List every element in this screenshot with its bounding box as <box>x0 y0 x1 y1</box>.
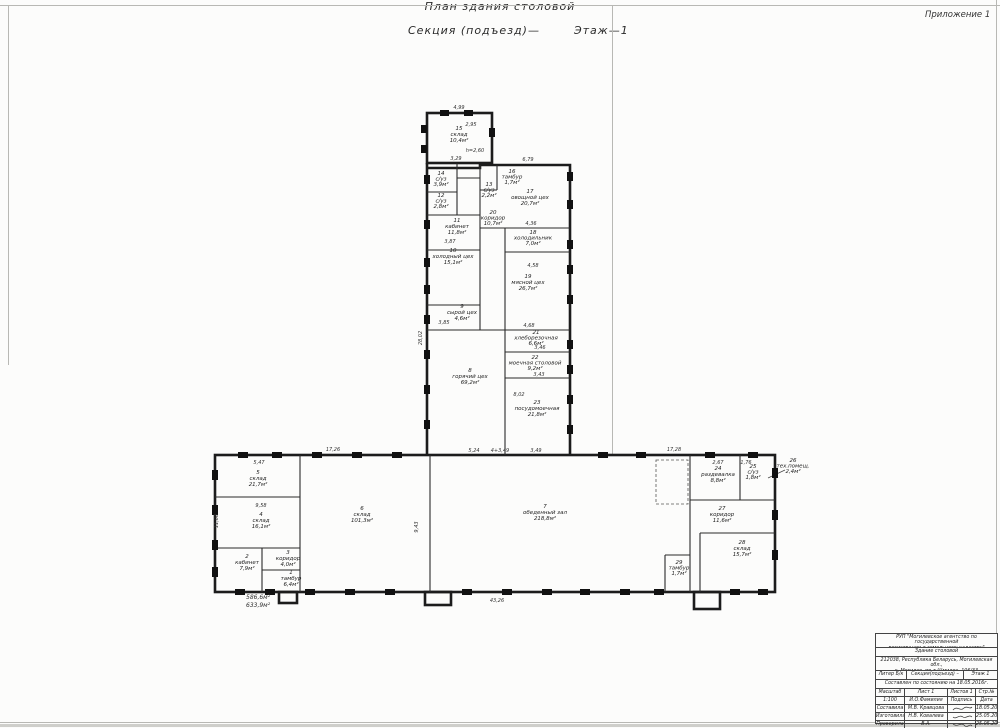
room-area: 69,2м² <box>461 379 480 386</box>
dim-label: 8,02 <box>513 392 524 398</box>
room-area: 15,7м² <box>733 551 752 558</box>
drafter-signature <box>948 713 976 720</box>
dim-label: 3,49 <box>530 448 541 454</box>
dim-label: 5,47 <box>253 460 265 466</box>
room-area: 2,4м² <box>785 468 801 475</box>
scale-value: 1:100 <box>876 697 905 704</box>
room-area: 218,8м² <box>534 515 557 522</box>
dim-label: 2,95 <box>465 122 476 128</box>
room-area: 2,8м² <box>433 203 449 210</box>
room-area: 7,9м² <box>239 565 255 572</box>
room-area: 8,8м² <box>710 477 726 484</box>
room-label-17: 17овощной цех20,7м² <box>511 189 550 207</box>
col-sheets: Листов 1 <box>948 689 976 696</box>
room-labels: 1тамбур6,4м² 2кабинет7,9м² 3коридор4,0м²… <box>235 126 810 588</box>
room-area: 15,1м² <box>444 259 463 266</box>
name-header: И.О.Фамилия <box>905 697 948 704</box>
area-total-1: 586,6м² <box>246 594 271 601</box>
room-label-24: 24раздевалка8,8м² <box>700 466 735 484</box>
room-label-15: 15склад10,4м² <box>450 126 469 144</box>
room-label-27: 27коридор11,6м² <box>710 506 735 524</box>
room-area: 16,1м² <box>252 523 271 530</box>
liter-cell: Литер Б/к <box>876 671 907 679</box>
dim-label: 43,26 <box>490 598 504 604</box>
org-name-line1: РУП "Могилевское агентство по государств… <box>876 635 997 646</box>
room-area: 1,8м² <box>745 474 761 481</box>
dim-label: 4,99 <box>453 105 464 111</box>
compiled-date: Составлен по состоянию на 18.05.2016г. <box>876 680 997 689</box>
room-label-16: 16тамбур1,7м² <box>502 169 523 186</box>
dim-label: 3,43 <box>533 372 544 378</box>
interior-walls <box>215 163 775 592</box>
address-line1: 212038, Республика Беларусь, Могилевская… <box>876 658 997 669</box>
room-label-11: 11кабинет11,8м² <box>445 218 470 236</box>
room-area: 21,8м² <box>528 411 547 418</box>
role-drafter: Изготовила <box>876 713 905 720</box>
dim-label: 1,76 <box>740 460 751 466</box>
title-block: РУП "Могилевское агентство по государств… <box>875 633 998 724</box>
room-label-3: 3коридор4,0м² <box>276 550 301 568</box>
compiler-date: 18.05.2016 <box>976 705 997 712</box>
section-cell: Секция(подъезд) – <box>907 671 964 679</box>
room-area: 2,2м² <box>481 192 497 199</box>
outer-walls <box>215 113 775 609</box>
room-area: 4,0м² <box>280 561 296 568</box>
height-note: h=2,60 <box>466 148 485 154</box>
dim-label: 9,43 <box>414 521 420 532</box>
col-scale-header: Масштаб <box>876 689 905 696</box>
date-header: Дата <box>976 697 997 704</box>
room-label-1: 1тамбур6,4м² <box>281 570 302 588</box>
dim-label: 3,29 <box>450 156 461 162</box>
room-label-22: 22моечная столовой9,2м² <box>509 355 562 372</box>
dim-label: 17,28 <box>667 447 681 453</box>
dim-label: 6,79 <box>522 157 533 163</box>
dim-label: 3,87 <box>444 239 456 245</box>
room-label-19: 19мясной цех26,7м² <box>511 274 545 292</box>
room-area: 101,3м² <box>351 517 374 524</box>
room-area: 10,7м² <box>484 220 503 227</box>
room-label-5: 5склад21,7м² <box>249 470 268 488</box>
role-compiler: Составила <box>876 705 905 712</box>
dim-label: 3,46 <box>534 345 545 351</box>
signature-squiggle <box>951 713 973 720</box>
dim-label: 5,24 <box>468 448 479 454</box>
dim-label: 9,58 <box>255 503 266 509</box>
room-label-18: 18холодильник7,0м² <box>513 230 553 247</box>
drafter-name: Н.В. Ковалева <box>905 713 948 720</box>
room-label-14: 14с/уз3,9м² <box>433 171 449 188</box>
object-name: Здание столовой <box>876 648 997 657</box>
drafter-date: 25.05.2016 <box>976 713 997 720</box>
room-label-26: 26тех.помещ.2,4м² <box>776 458 809 475</box>
room-area: 11,6м² <box>713 517 732 524</box>
room-label-10: 10холодный цех15,1м² <box>432 248 475 266</box>
room-label-20: 20коридор10,7м² <box>481 210 506 227</box>
dim-label: 11,08 <box>214 514 220 528</box>
room-area: 4,6м² <box>454 315 470 322</box>
dim-label: 4+3,49 <box>491 448 510 454</box>
floor-cell: Этаж 1 <box>964 671 997 679</box>
dim-label: 4,36 <box>525 221 536 227</box>
col-sheet: Лист 1 <box>905 689 948 696</box>
room-area: 1,7м² <box>504 179 520 186</box>
room-label-29: 29тамбур1,7м² <box>669 560 690 577</box>
sheet-frame-lines <box>0 0 1000 723</box>
dim-label: 2,67 <box>712 460 724 466</box>
room-area: 6,4м² <box>283 581 299 588</box>
room-label-4: 4склад16,1м² <box>252 512 271 530</box>
floor-plan: 1тамбур6,4м² 2кабинет7,9м² 3коридор4,0м²… <box>0 0 1000 727</box>
room-label-9: 9сырой цех4,6м² <box>447 304 478 322</box>
compiler-signature <box>948 705 976 712</box>
room-label-2: 2кабинет7,9м² <box>235 554 260 572</box>
signature-squiggle <box>951 705 973 712</box>
col-page: Стр.№ <box>976 689 997 696</box>
room-label-6: 6склад101,3м² <box>351 506 374 524</box>
room-label-23: 23посудомоечная21,8м² <box>515 400 561 418</box>
room-label-12: 12с/уз2,8м² <box>433 193 449 210</box>
dim-label: 4,68 <box>523 323 534 329</box>
room-label-28: 28склад15,7м² <box>733 540 752 558</box>
room-area: 26,7м² <box>519 285 538 292</box>
room-area: 7,0м² <box>525 240 541 247</box>
dim-label: 17,26 <box>326 447 340 453</box>
dim-label: 4,58 <box>527 263 538 269</box>
dim-label: 28,02 <box>418 331 424 345</box>
dim-label: 3,85 <box>438 320 449 326</box>
dimension-labels: 4,99 2,95 3,29 6,79 4,36 4,58 4,68 3,46 … <box>214 105 752 604</box>
compiler-name: М.В. Кравцова <box>905 705 948 712</box>
room-area: 21,7м² <box>249 481 268 488</box>
room-label-25: 25с/уз1,8м² <box>745 464 761 481</box>
area-total-2: 633,9м² <box>246 602 271 609</box>
room-label-7: 7обеденный зал218,8м² <box>523 504 567 522</box>
room-area: 10,4м² <box>450 137 469 144</box>
room-label-8: 8горячий цех69,2м² <box>452 368 488 386</box>
room-area: 11,8м² <box>448 229 467 236</box>
window-ticks <box>212 110 778 595</box>
dashed-outline <box>656 460 688 504</box>
signature-header: Подпись <box>948 697 976 704</box>
room-area: 20,7м² <box>521 200 540 207</box>
room-area: 1,7м² <box>671 570 687 577</box>
room-area: 3,9м² <box>433 181 449 188</box>
room-area: 9,2м² <box>527 365 543 372</box>
